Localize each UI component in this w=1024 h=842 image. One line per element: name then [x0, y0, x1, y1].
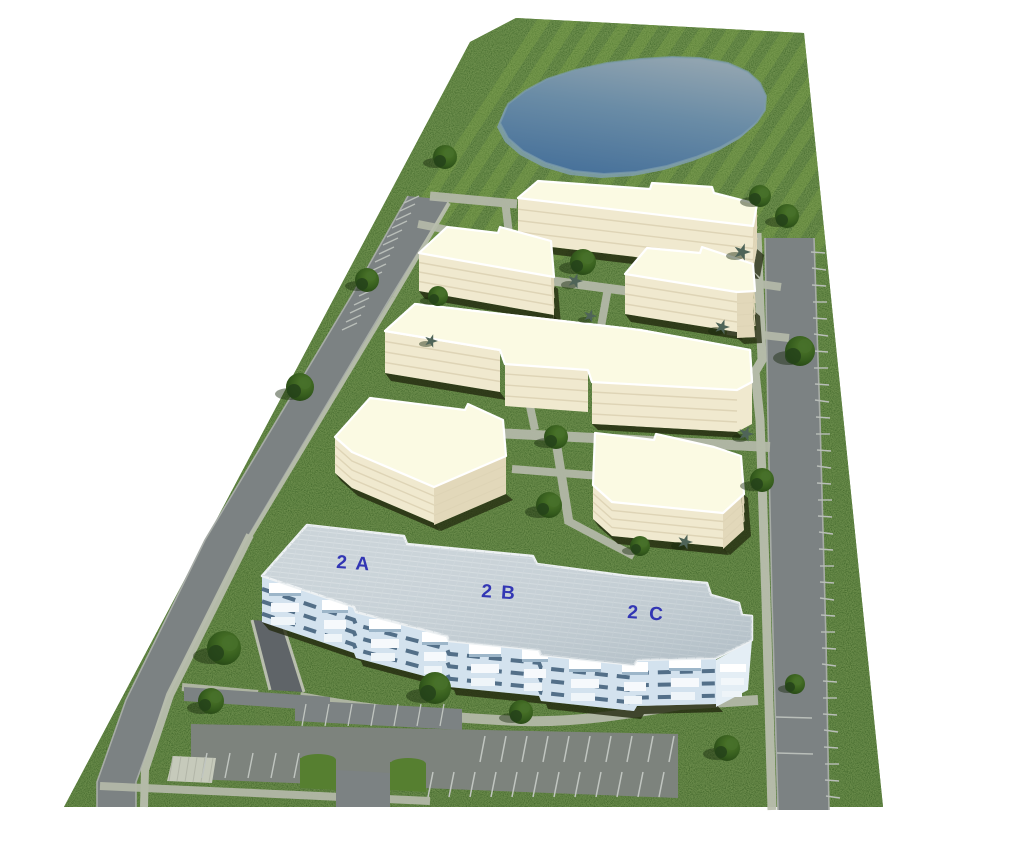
svg-text:2 A: 2 A — [336, 552, 372, 575]
svg-text:2 C: 2 C — [627, 602, 667, 626]
svg-text:2 B: 2 B — [481, 581, 518, 604]
